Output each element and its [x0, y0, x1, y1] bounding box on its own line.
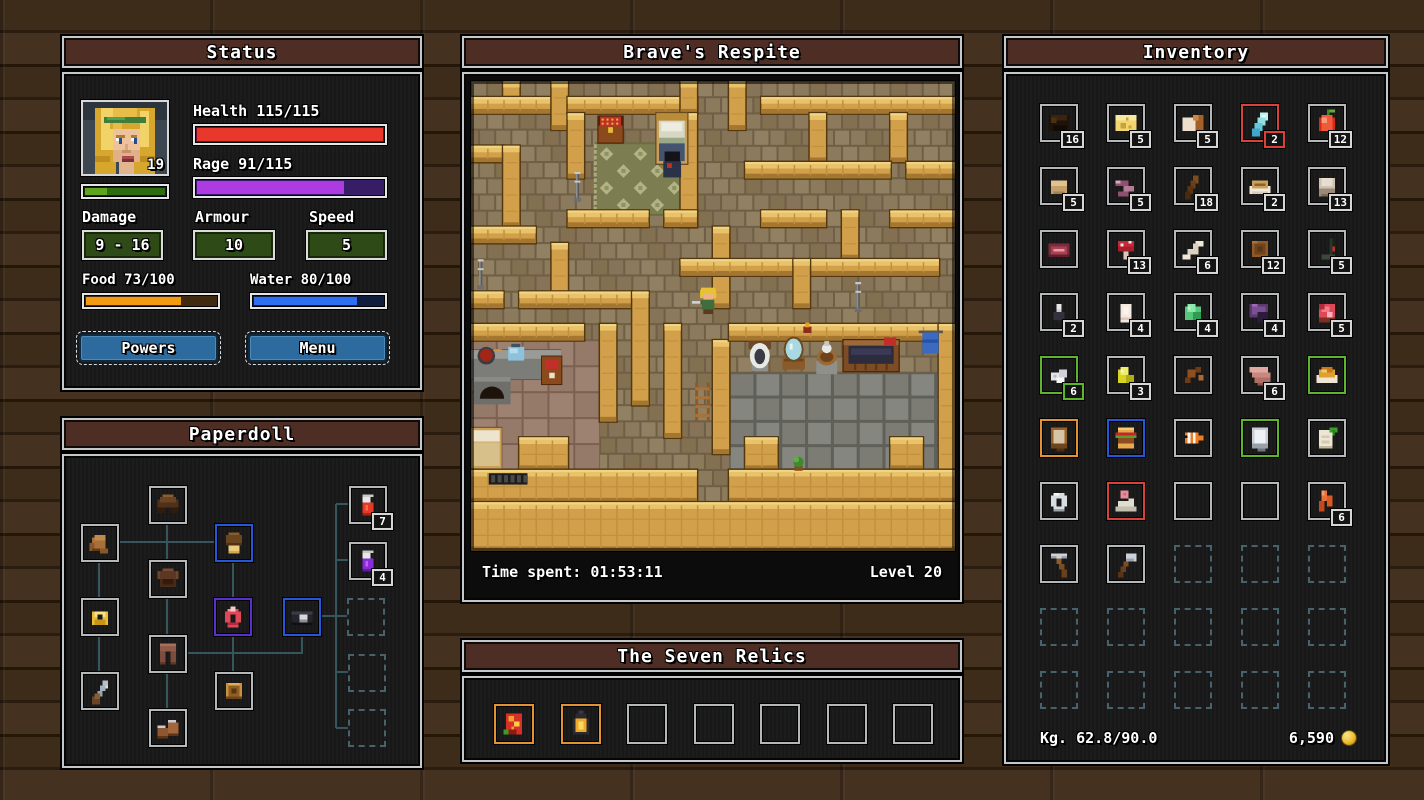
- paperdoll-slot-legs[interactable]: [149, 635, 187, 673]
- armour-label: Armour: [195, 208, 249, 226]
- quantity-badge: 5: [1130, 131, 1151, 148]
- coin-icon: [1342, 731, 1356, 745]
- axe-icon: [1110, 548, 1142, 580]
- food-label: Food 73/100: [82, 272, 175, 288]
- paperdoll-slot-shoulders[interactable]: [149, 486, 187, 524]
- paperdoll-connector: [187, 652, 303, 654]
- inventory-slot-locked: [1107, 671, 1145, 709]
- quantity-badge: 18: [1195, 194, 1218, 211]
- quantity-badge: 6: [1264, 383, 1285, 400]
- paperdoll-connector: [98, 636, 100, 672]
- relics-panel: [462, 676, 962, 762]
- paperdoll-slot-quick-potion-2[interactable]: 4: [349, 542, 387, 580]
- inventory-slot-worms[interactable]: 5: [1107, 167, 1145, 205]
- food-bar: [82, 293, 220, 309]
- inventory-slot-apple[interactable]: 12: [1308, 104, 1346, 142]
- quantity-badge: 4: [1197, 320, 1218, 337]
- inventory-slot-locked: [1308, 608, 1346, 646]
- character-portrait: 19: [81, 100, 169, 176]
- inventory-slot-bits[interactable]: [1174, 356, 1212, 394]
- gloves-icon: [84, 527, 116, 559]
- weight-label: Kg. 62.8/90.0: [1040, 729, 1157, 747]
- xp-bar: [81, 184, 169, 199]
- paperdoll-slot-gloves[interactable]: [81, 524, 119, 562]
- character-level: 19: [147, 157, 164, 173]
- quantity-badge: 5: [1197, 131, 1218, 148]
- map-status-bar: Time spent: 01:53:11 Level 20: [470, 554, 954, 590]
- water-bar: [250, 293, 387, 309]
- inventory-slot-planks[interactable]: 6: [1241, 356, 1279, 394]
- inventory-slot-crystal-yellow[interactable]: 3: [1107, 356, 1145, 394]
- belt-icon: [286, 601, 318, 633]
- paperdoll-panel: 74: [62, 454, 422, 768]
- game-world-canvas[interactable]: [470, 80, 956, 552]
- paperdoll-slot-quick-empty-1: [347, 598, 385, 636]
- pauldrons-icon: [152, 489, 184, 521]
- paperdoll-slot-boots[interactable]: [149, 709, 187, 747]
- inventory-slot-sugar[interactable]: 6: [1040, 356, 1078, 394]
- relic-slot-6[interactable]: [827, 704, 867, 744]
- paperdoll-connector: [232, 636, 234, 672]
- inventory-slot-locked: [1241, 671, 1279, 709]
- inventory-title: Inventory: [1143, 42, 1250, 63]
- inventory-slot-stick[interactable]: 18: [1174, 167, 1212, 205]
- relics-panel-header: The Seven Relics: [462, 640, 962, 672]
- paperdoll-connector: [336, 503, 349, 505]
- time-spent: Time spent: 01:53:11: [482, 563, 663, 581]
- armour-value: 10: [225, 236, 243, 254]
- quantity-badge: 13: [1329, 194, 1352, 211]
- ring-silver-icon: [1043, 485, 1075, 517]
- paperdoll-slot-chest[interactable]: [149, 560, 187, 598]
- game-screen: Status 19 Health 115/115 Rage 91/115 Dam…: [0, 0, 1424, 800]
- armour-value-box: 10: [193, 230, 275, 260]
- inventory-slot-bone[interactable]: 6: [1174, 230, 1212, 268]
- menu-button-label: Menu: [299, 339, 335, 357]
- inventory-slot-whitebook[interactable]: [1241, 419, 1279, 457]
- relic-slot-3[interactable]: [627, 704, 667, 744]
- quantity-badge: 12: [1329, 131, 1352, 148]
- inventory-slot-crystal-blue[interactable]: 2: [1241, 104, 1279, 142]
- paperdoll-slot-quick-empty-2: [348, 654, 386, 692]
- boots-icon: [152, 712, 184, 744]
- map-title: Brave's Respite: [623, 42, 801, 63]
- quantity-badge: 6: [1063, 383, 1084, 400]
- inventory-slot-empty[interactable]: [1241, 482, 1279, 520]
- pickaxe-icon: [1043, 548, 1075, 580]
- meal-icon: [1311, 359, 1343, 391]
- paperdoll-connector: [166, 524, 168, 560]
- inventory-slot-bonepile[interactable]: [1107, 482, 1145, 520]
- map-panel-header: Brave's Respite: [462, 36, 962, 68]
- paperdoll-slot-weapon[interactable]: [81, 672, 119, 710]
- sword-icon: [84, 675, 116, 707]
- paperdoll-connector: [166, 673, 168, 709]
- status-title: Status: [206, 42, 277, 63]
- paperdoll-title: Paperdoll: [189, 424, 296, 445]
- inventory-slot-batwing[interactable]: 4: [1241, 293, 1279, 331]
- paperdoll-slot-quick-empty-3: [348, 709, 386, 747]
- inventory-slot-wool[interactable]: 13: [1308, 167, 1346, 205]
- quantity-badge: 5: [1331, 257, 1352, 274]
- health-label: Health 115/115: [193, 102, 319, 120]
- quantity-badge: 5: [1063, 194, 1084, 211]
- damage-label: Damage: [82, 208, 136, 226]
- inventory-slot-locked: [1174, 545, 1212, 583]
- inventory-slot-tome[interactable]: [1040, 419, 1078, 457]
- inventory-slot-ring-silver[interactable]: [1040, 482, 1078, 520]
- burger-icon: [1110, 422, 1142, 454]
- chestplate-icon: [152, 563, 184, 595]
- paperdoll-connector: [166, 598, 168, 635]
- speed-value-box: 5: [306, 230, 387, 260]
- inventory-slot-hide[interactable]: 16: [1040, 104, 1078, 142]
- legs-icon: [152, 638, 184, 670]
- inventory-slot-locked: [1241, 608, 1279, 646]
- quantity-badge: 6: [1197, 257, 1218, 274]
- inventory-slot-fletching[interactable]: 6: [1308, 482, 1346, 520]
- inventory-slot-bowl[interactable]: 2: [1241, 167, 1279, 205]
- quantity-badge: 12: [1262, 257, 1285, 274]
- rage-label: Rage 91/115: [193, 155, 292, 173]
- quantity-badge: 5: [1130, 194, 1151, 211]
- inventory-slot-steak[interactable]: [1040, 230, 1078, 268]
- steak-icon: [1043, 233, 1075, 265]
- inventory-slot-empty[interactable]: [1174, 482, 1212, 520]
- relic-slot-2[interactable]: [561, 704, 601, 744]
- menu-button[interactable]: Menu: [248, 334, 387, 362]
- inventory-slot-fish[interactable]: [1174, 419, 1212, 457]
- health-bar: [193, 124, 387, 145]
- inventory-slot-darkbow[interactable]: 5: [1308, 230, 1346, 268]
- dungeon-level: Level 20: [870, 563, 942, 581]
- quantity-badge: 4: [1264, 320, 1285, 337]
- inventory-panel-header: Inventory: [1004, 36, 1388, 68]
- inventory-slot-locked: [1107, 608, 1145, 646]
- quantity-badge: 4: [372, 569, 393, 586]
- paperdoll-panel-header: Paperdoll: [62, 418, 422, 450]
- bonepile-icon: [1110, 485, 1142, 517]
- inventory-slot-burger[interactable]: [1107, 419, 1145, 457]
- inventory-slot-pickaxe[interactable]: [1040, 545, 1078, 583]
- relic-lantern-icon: [565, 708, 597, 740]
- quantity-badge: 7: [372, 513, 393, 530]
- quantity-badge: 2: [1264, 131, 1285, 148]
- fish-icon: [1177, 422, 1209, 454]
- whitebook-icon: [1244, 422, 1276, 454]
- inventory-slot-locked: [1040, 608, 1078, 646]
- powers-button-label: Powers: [121, 339, 175, 357]
- inventory-slot-figurine[interactable]: 2: [1040, 293, 1078, 331]
- inventory-slot-locked: [1040, 671, 1078, 709]
- paperdoll-slot-quick-potion-1[interactable]: 7: [349, 486, 387, 524]
- map-viewport[interactable]: [470, 80, 956, 552]
- inventory-slot-locked: [1308, 671, 1346, 709]
- water-label: Water 80/100: [250, 272, 351, 288]
- speed-value: 5: [342, 236, 351, 254]
- relic-cloth-icon: [498, 708, 530, 740]
- inventory-slot-mushroom[interactable]: 13: [1107, 230, 1145, 268]
- quantity-badge: 5: [1331, 320, 1352, 337]
- inventory-slot-locked: [1241, 545, 1279, 583]
- quantity-badge: 2: [1264, 194, 1285, 211]
- powers-button[interactable]: Powers: [79, 334, 218, 362]
- inventory-panel: Kg. 62.8/90.0 6,590 16552125518213136125…: [1004, 72, 1388, 764]
- amulet-icon: [217, 601, 249, 633]
- inventory-slot-redmeat[interactable]: 5: [1308, 293, 1346, 331]
- inventory-slot-scroll[interactable]: [1308, 419, 1346, 457]
- speed-label: Speed: [309, 208, 354, 226]
- relic-slot-4[interactable]: [694, 704, 734, 744]
- damage-value-box: 9 - 16: [82, 230, 163, 260]
- tome-icon: [1043, 422, 1075, 454]
- rage-bar: [193, 177, 387, 198]
- paperdoll-slot-amulet[interactable]: [214, 598, 252, 636]
- inventory-slot-hay[interactable]: 5: [1040, 167, 1078, 205]
- paperdoll-slot-belt[interactable]: [283, 598, 321, 636]
- paperdoll-connector: [301, 636, 303, 653]
- quantity-badge: 3: [1130, 383, 1151, 400]
- quantity-badge: 4: [1130, 320, 1151, 337]
- quantity-badge: 13: [1128, 257, 1151, 274]
- inventory-slot-slime[interactable]: 4: [1174, 293, 1212, 331]
- bits-icon: [1177, 359, 1209, 391]
- shield-icon: [218, 675, 250, 707]
- inventory-slot-pelt[interactable]: 12: [1241, 230, 1279, 268]
- inventory-slot-bread[interactable]: 5: [1174, 104, 1212, 142]
- weight-indicator: Kg. 62.8/90.0: [1040, 729, 1157, 747]
- scroll-icon: [1311, 422, 1343, 454]
- paperdoll-slot-helmet[interactable]: [215, 524, 253, 562]
- gold-amount: 6,590: [1289, 729, 1334, 747]
- paperdoll-connector: [98, 562, 100, 598]
- paperdoll-connector: [336, 671, 348, 673]
- cap-icon: [218, 527, 250, 559]
- paperdoll-slot-shield[interactable]: [215, 672, 253, 710]
- inventory-slot-locked: [1174, 608, 1212, 646]
- gold-indicator: 6,590: [1289, 729, 1356, 747]
- paperdoll-connector: [232, 562, 234, 598]
- paperdoll-connector: [321, 615, 336, 617]
- relic-slot-7[interactable]: [893, 704, 933, 744]
- relic-slot-5[interactable]: [760, 704, 800, 744]
- inventory-slot-axe[interactable]: [1107, 545, 1145, 583]
- status-panel: 19 Health 115/115 Rage 91/115 Damage Arm…: [62, 72, 422, 390]
- quantity-badge: 2: [1063, 320, 1084, 337]
- relic-slot-1[interactable]: [494, 704, 534, 744]
- status-panel-header: Status: [62, 36, 422, 68]
- inventory-slot-egg[interactable]: 4: [1107, 293, 1145, 331]
- paperdoll-connector: [336, 727, 348, 729]
- paperdoll-connector: [336, 615, 347, 617]
- quantity-badge: 6: [1331, 509, 1352, 526]
- ring-gold-icon: [84, 601, 116, 633]
- inventory-slot-locked: [1308, 545, 1346, 583]
- inventory-slot-locked: [1174, 671, 1212, 709]
- paperdoll-slot-ring[interactable]: [81, 598, 119, 636]
- map-panel: Time spent: 01:53:11 Level 20: [462, 72, 962, 602]
- inventory-slot-meal[interactable]: [1308, 356, 1346, 394]
- paperdoll-connector: [336, 559, 349, 561]
- relics-title: The Seven Relics: [617, 646, 806, 667]
- damage-value: 9 - 16: [95, 236, 149, 254]
- inventory-slot-cheese[interactable]: 5: [1107, 104, 1145, 142]
- quantity-badge: 16: [1061, 131, 1084, 148]
